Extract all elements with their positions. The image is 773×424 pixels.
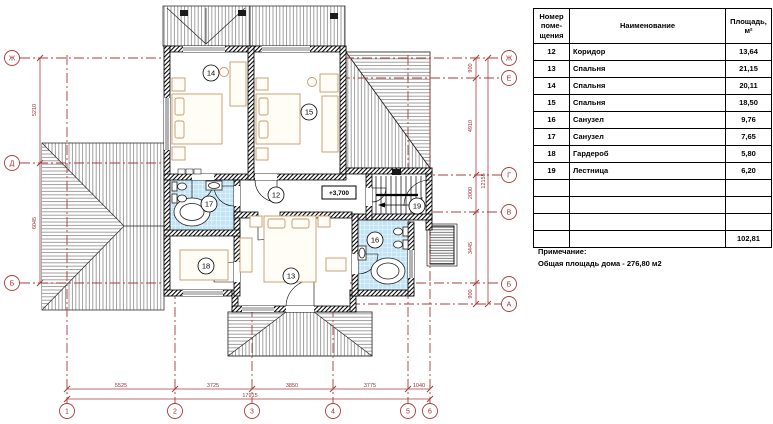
svg-text:В: В [507,210,512,217]
cell-name [570,180,726,197]
cell-name: Гардероб [570,146,726,163]
svg-text:6045: 6045 [32,217,38,229]
table-row: 19 Лестница 6,20 [534,163,772,180]
svg-text:900: 900 [468,289,474,298]
roof-left-hip [42,143,164,310]
dimension-right: 900 4910 2000 3445 900 12155 [468,55,491,307]
svg-text:19: 19 [413,202,421,211]
svg-text:2000: 2000 [468,187,474,199]
cell-area: 18,50 [726,95,772,112]
bidet-17 [172,194,187,203]
cell-area: 5,80 [726,146,772,163]
table-row-empty [534,214,772,231]
header-room-name: Наименование [570,9,726,44]
room-schedule-table: Номер поме- щения Наименование Площадь, … [533,8,772,248]
window [408,250,414,278]
cupboard-room13 [240,238,252,272]
dimension-left: 5210 6045 [32,55,43,286]
note-title: Примечание: [538,246,662,258]
svg-text:3725: 3725 [207,383,219,389]
dresser-room13 [326,258,346,271]
cell-name: Спальня [570,95,726,112]
svg-text:Е: Е [507,76,512,83]
window [183,46,225,52]
note-block: Примечание: Общая площадь дома - 276,80 … [538,246,662,270]
dimension-bottom: 5525 3725 3850 3775 1040 17915 [64,383,433,402]
roof-vent [330,13,338,19]
desk-room14 [230,62,246,106]
table-row-empty [534,197,772,214]
header-room-number: Номер поме- щения [534,9,570,44]
cell-num: 13 [534,61,570,78]
cell-name: Санузел [570,129,726,146]
svg-text:+3,700: +3,700 [329,190,349,197]
room-label-16: 16 [367,232,383,248]
cell-num: 15 [534,95,570,112]
svg-text:18: 18 [202,262,210,271]
cell-num: 14 [534,78,570,95]
axis-markers-bottom: 1 2 3 4 5 6 [60,404,438,419]
svg-text:3775: 3775 [364,383,376,389]
cell-num: 17 [534,129,570,146]
table-row: 18 Гардероб 5,80 [534,146,772,163]
cell-name [570,214,726,231]
cell-area [726,214,772,231]
cell-num [534,231,570,248]
svg-text:5210: 5210 [32,104,38,116]
roof-top-right [250,6,345,46]
svg-text:6: 6 [428,409,432,416]
room-label-18: 18 [198,258,214,274]
cell-area: 21,15 [726,61,772,78]
level-mark: +3,700 [322,186,356,199]
svg-text:4: 4 [331,409,335,416]
cell-num: 16 [534,112,570,129]
cell-num [534,197,570,214]
window [164,98,170,150]
svg-text:17915: 17915 [242,393,257,399]
svg-text:1040: 1040 [413,383,425,389]
cell-area: 7,65 [726,129,772,146]
chair-room15 [308,78,317,87]
wardrobe-room15 [322,96,338,152]
cell-name: Спальня [570,78,726,95]
svg-text:2: 2 [173,409,177,416]
svg-text:Ж: Ж [506,56,513,63]
cell-name [570,231,726,248]
total-area-value: 102,81 [726,231,772,248]
cell-num: 12 [534,44,570,61]
cell-area: 9,76 [726,112,772,129]
svg-text:5: 5 [406,409,410,416]
note-total-area: Общая площадь дома - 276,80 м2 [538,258,662,270]
sink-17 [206,181,222,190]
drawing-sheet: 14 15 12 17 18 13 16 19 +3,700 5525 3725… [0,0,773,424]
cell-num: 18 [534,146,570,163]
table-row: 14 Спальня 20,11 [534,78,772,95]
cell-name: Санузел [570,112,726,129]
cell-name: Коридор [570,44,726,61]
svg-text:5525: 5525 [115,383,127,389]
bidet-16 [394,240,409,249]
window [183,290,223,296]
window [242,306,274,312]
svg-text:12: 12 [272,191,280,200]
table-row: 15 Спальня 18,50 [534,95,772,112]
toilet-16 [394,227,409,236]
svg-text:А: А [507,302,512,309]
roof-top-left [163,6,250,46]
sink-16 [358,246,366,260]
svg-text:900: 900 [468,63,474,72]
svg-text:17: 17 [205,200,213,209]
cell-name: Лестница [570,163,726,180]
table-row-empty [534,180,772,197]
svg-text:3850: 3850 [286,383,298,389]
svg-text:3: 3 [250,409,254,416]
cell-name [570,197,726,214]
axis-markers-left: Ж Д Б [5,51,20,291]
cell-num: 19 [534,163,570,180]
svg-text:12155: 12155 [481,173,487,188]
table-row: 17 Санузел 7,65 [534,129,772,146]
roof-porch [228,312,372,356]
roof-right [346,52,430,168]
table-row: 12 Коридор 13,64 [534,44,772,61]
room-label-17: 17 [201,196,217,212]
room-label-12: 12 [268,187,284,203]
svg-text:Ж: Ж [9,56,16,63]
cell-area: 13,64 [726,44,772,61]
svg-text:13: 13 [287,272,295,281]
cell-num [534,180,570,197]
cell-area: 20,11 [726,78,772,95]
svg-text:4910: 4910 [468,120,474,132]
table-row: 16 Санузел 9,76 [534,112,772,129]
room-label-13: 13 [283,268,299,284]
axis-markers-right: Ж Е Г В Б А [502,51,517,312]
room-label-15: 15 [301,104,317,120]
svg-text:Б: Б [507,282,512,289]
cell-area: 6,20 [726,163,772,180]
svg-text:15: 15 [305,108,313,117]
header-room-area: Площадь, м² [726,9,772,44]
floor-plan: 14 15 12 17 18 13 16 19 +3,700 5525 3725… [0,0,530,424]
cell-area [726,180,772,197]
svg-text:Б: Б [10,281,15,288]
cell-area [726,197,772,214]
cell-name: Спальня [570,61,726,78]
table-total-row: 102,81 [534,231,772,248]
svg-text:Г: Г [507,173,511,180]
roof-vent [238,10,246,16]
table-header-row: Номер поме- щения Наименование Площадь, … [534,9,772,44]
svg-text:14: 14 [207,69,215,78]
table-row: 13 Спальня 21,15 [534,61,772,78]
room-label-14: 14 [203,65,219,81]
cell-num [534,214,570,231]
room-label-19: 19 [409,198,425,214]
svg-text:Д: Д [10,161,15,168]
roof-vent [180,10,188,16]
window [262,46,310,52]
svg-text:3445: 3445 [468,242,474,254]
toilet-17 [172,182,187,191]
svg-text:1: 1 [65,409,69,416]
chair-room14 [220,68,229,77]
svg-text:16: 16 [371,236,379,245]
